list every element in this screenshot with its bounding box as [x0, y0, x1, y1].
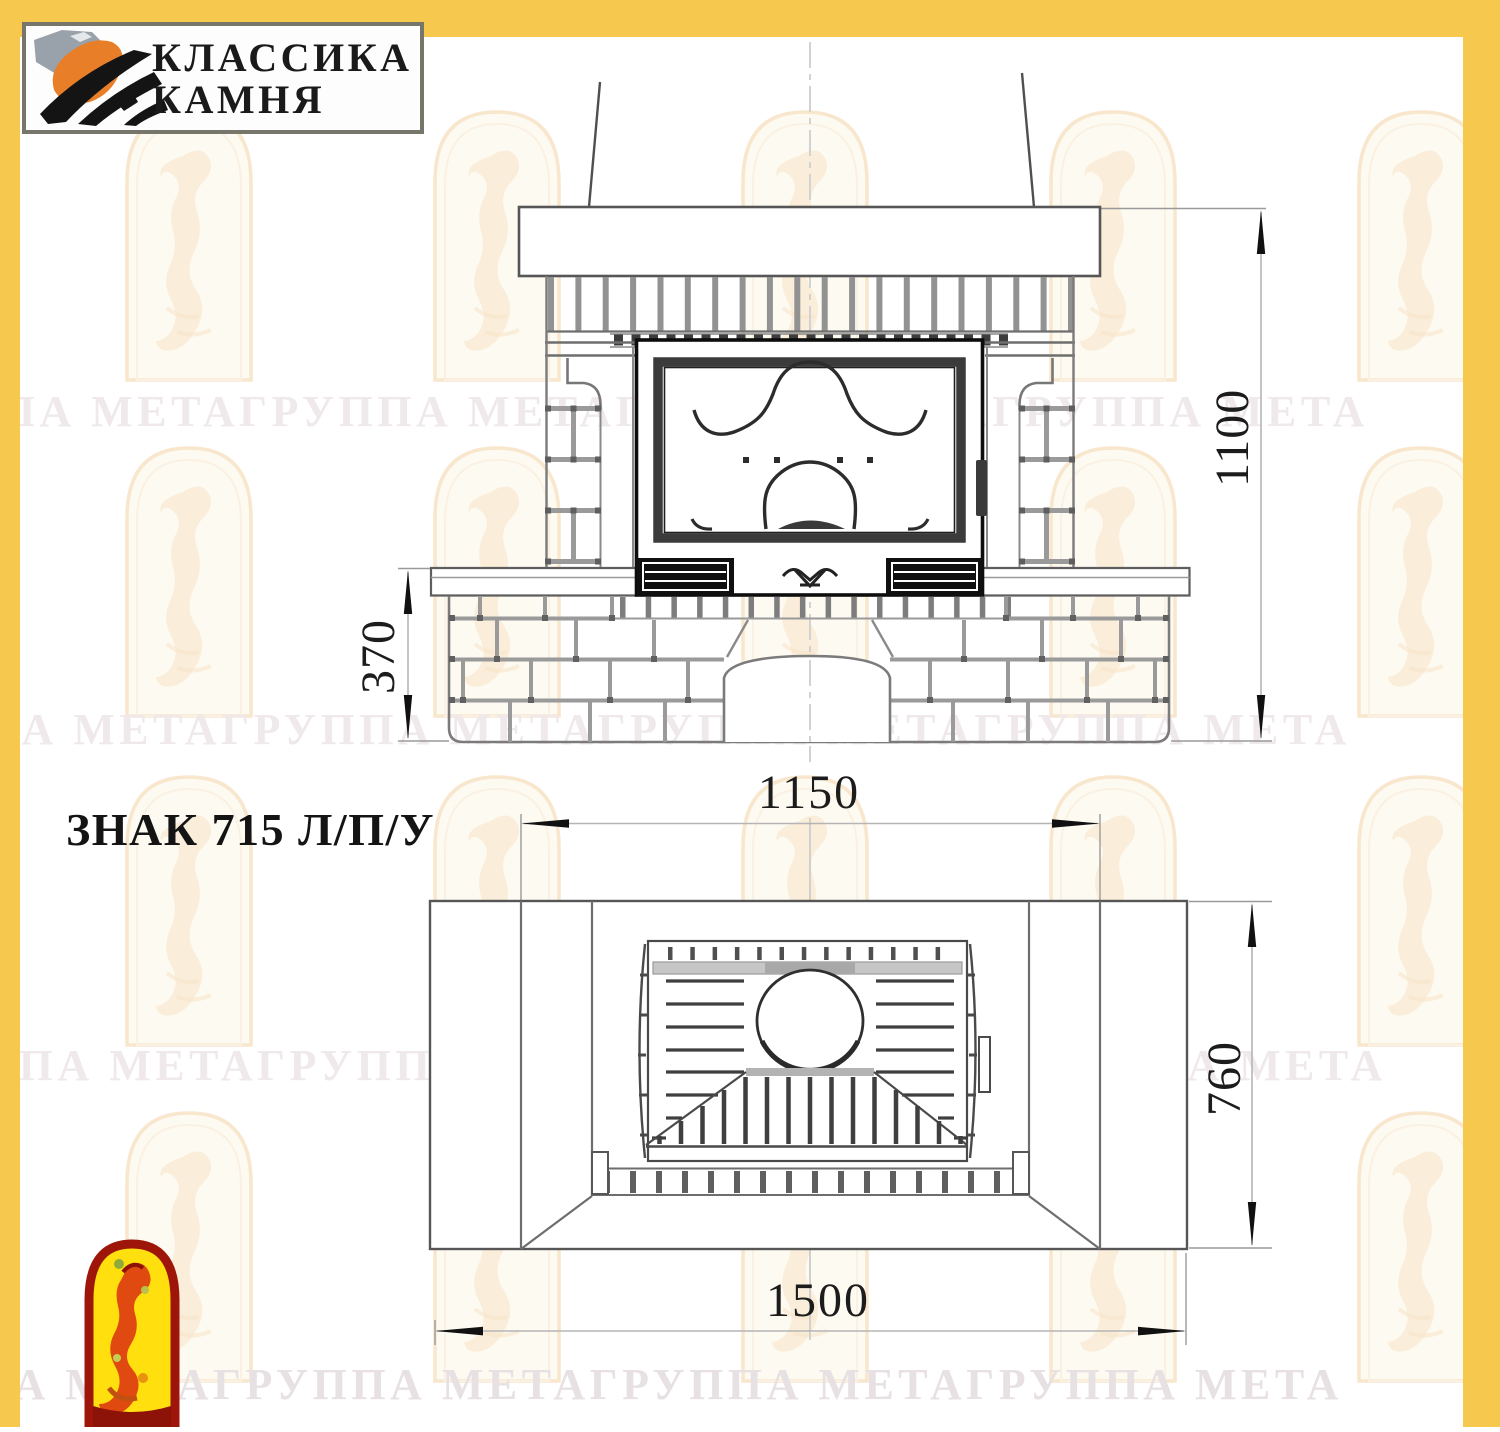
svg-text:1500: 1500 — [766, 1274, 870, 1327]
svg-text:ППА МЕТАГРУППА МЕТАГРУППА МЕТА: ППА МЕТАГРУППА МЕТАГРУППА МЕТАГРУППА МЕТ… — [0, 705, 1351, 754]
svg-text:370: 370 — [352, 619, 405, 694]
svg-text:1100: 1100 — [1206, 389, 1259, 487]
svg-text:ЗНАК 715 Л/П/У: ЗНАК 715 Л/П/У — [66, 804, 435, 855]
svg-text:КЛАССИКА: КЛАССИКА — [152, 35, 412, 80]
svg-text:КАМНЯ: КАМНЯ — [152, 77, 325, 122]
svg-text:1150: 1150 — [758, 766, 860, 819]
svg-text:760: 760 — [1198, 1041, 1251, 1116]
svg-text:ППА МЕТАГРУППА МЕТАГРУППА МЕТА: ППА МЕТАГРУППА МЕТАГРУППА МЕТАГРУППА МЕТ… — [0, 1360, 1343, 1409]
